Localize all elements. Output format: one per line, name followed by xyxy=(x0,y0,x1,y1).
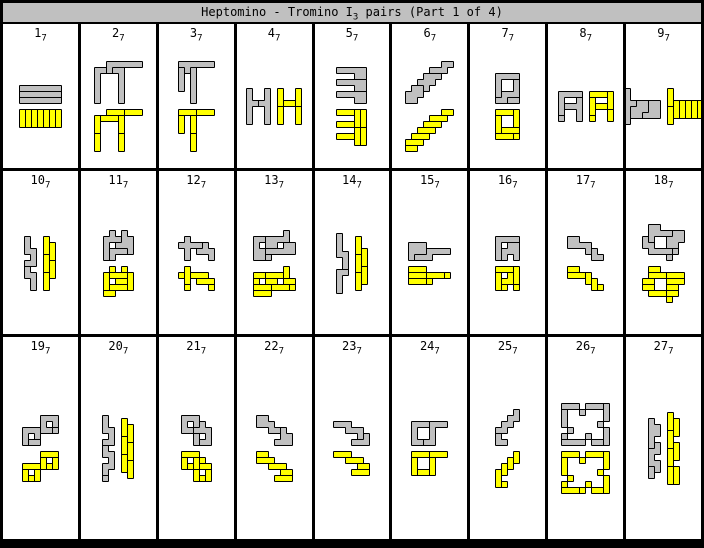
puzzle-cell-20: 207 xyxy=(81,337,156,539)
tromino-figure xyxy=(121,418,134,479)
tromino-figure xyxy=(495,109,520,140)
tromino-figure xyxy=(94,109,143,152)
heptomino-figure xyxy=(405,61,454,104)
figure-area xyxy=(181,358,212,539)
heptomino-figure xyxy=(94,61,143,104)
cell-label: 127 xyxy=(186,171,206,192)
cell-label: 187 xyxy=(654,171,674,192)
cell-label: 147 xyxy=(342,171,362,192)
heptomino-figure xyxy=(558,91,583,122)
puzzle-cell-18: 187 xyxy=(626,171,701,334)
heptomino-figure xyxy=(103,230,134,261)
puzzle-cell-14: 147 xyxy=(315,171,390,334)
tromino-figure xyxy=(253,266,296,297)
heptomino-figure xyxy=(626,88,660,125)
tromino-figure xyxy=(22,451,59,482)
figure-area xyxy=(648,358,680,539)
puzzle-cell-10: 107 xyxy=(3,171,78,334)
tromino-figure xyxy=(103,266,134,297)
cell-label: 277 xyxy=(654,337,674,358)
cell-label: 47 xyxy=(268,24,281,45)
cell-label: 167 xyxy=(498,171,518,192)
figure-area xyxy=(561,358,610,539)
cell-label: 247 xyxy=(420,337,440,358)
cell-label: 27 xyxy=(112,24,125,45)
tromino-figure xyxy=(181,451,212,482)
heptomino-figure xyxy=(22,415,59,446)
figure-area xyxy=(102,358,134,539)
figure-area xyxy=(408,192,451,334)
tromino-figure xyxy=(589,91,614,122)
heptomino-figure xyxy=(24,236,37,291)
figure-area xyxy=(405,45,454,168)
puzzle-cell-21: 217 xyxy=(159,337,234,539)
tromino-figure xyxy=(495,266,520,291)
heptomino-figure xyxy=(495,409,520,446)
puzzle-cell-7: 77 xyxy=(470,24,545,168)
heptomino-figure xyxy=(336,67,367,104)
figure-area xyxy=(246,45,302,168)
tromino-figure xyxy=(355,236,368,291)
heptomino-figure xyxy=(178,236,215,261)
figure-area xyxy=(558,45,614,168)
tromino-figure xyxy=(178,109,215,152)
cell-label: 77 xyxy=(501,24,514,45)
title-bar: Heptomino - Tromino I3 pairs (Part 1 of … xyxy=(3,3,701,24)
cell-label: 57 xyxy=(346,24,359,45)
cell-label: 257 xyxy=(498,337,518,358)
puzzle-cell-4: 47 xyxy=(237,24,312,168)
figure-area xyxy=(333,358,370,539)
tromino-figure xyxy=(495,451,520,488)
cell-label: 237 xyxy=(342,337,362,358)
figure-area xyxy=(178,192,215,334)
puzzle-sheet: Heptomino - Tromino I3 pairs (Part 1 of … xyxy=(0,0,704,548)
puzzle-cell-17: 177 xyxy=(548,171,623,334)
heptomino-figure xyxy=(495,236,520,261)
tromino-figure xyxy=(256,451,293,482)
heptomino-figure xyxy=(561,403,610,446)
cell-label: 17 xyxy=(34,24,47,45)
figure-area xyxy=(24,192,56,334)
tromino-figure xyxy=(642,266,685,303)
figure-area xyxy=(626,45,701,168)
cell-label: 197 xyxy=(31,337,51,358)
figure-area xyxy=(495,192,520,334)
puzzle-cell-24: 247 xyxy=(392,337,467,539)
cell-label: 67 xyxy=(424,24,437,45)
puzzle-grid: 1727374757677787971071171271371471571671… xyxy=(3,24,701,539)
puzzle-cell-9: 97 xyxy=(626,24,701,168)
figure-area xyxy=(94,45,143,168)
heptomino-figure xyxy=(256,415,293,446)
figure-area xyxy=(178,45,215,168)
tromino-figure xyxy=(667,412,680,485)
heptomino-figure xyxy=(567,236,604,261)
heptomino-figure xyxy=(333,421,370,446)
cell-label: 37 xyxy=(190,24,203,45)
heptomino-figure xyxy=(19,85,62,104)
puzzle-cell-5: 57 xyxy=(315,24,390,168)
cell-label: 267 xyxy=(576,337,596,358)
cell-label: 97 xyxy=(657,24,670,45)
figure-area xyxy=(336,192,368,334)
figure-area xyxy=(19,45,62,168)
figure-area xyxy=(411,358,448,539)
puzzle-cell-1: 17 xyxy=(3,24,78,168)
puzzle-cell-13: 137 xyxy=(237,171,312,334)
heptomino-figure xyxy=(642,224,685,261)
puzzle-cell-15: 157 xyxy=(392,171,467,334)
tromino-figure xyxy=(408,266,451,285)
puzzle-cell-11: 117 xyxy=(81,171,156,334)
figure-area xyxy=(567,192,604,334)
heptomino-figure xyxy=(102,415,115,482)
figure-area xyxy=(495,358,520,539)
tromino-figure xyxy=(19,109,62,128)
heptomino-figure xyxy=(246,88,271,125)
tromino-figure xyxy=(43,236,56,291)
heptomino-figure xyxy=(181,415,212,446)
tromino-figure xyxy=(405,109,454,152)
cell-label: 87 xyxy=(579,24,592,45)
figure-area xyxy=(256,358,293,539)
figure-area xyxy=(336,45,367,168)
puzzle-cell-22: 227 xyxy=(237,337,312,539)
cell-label: 137 xyxy=(264,171,284,192)
figure-area xyxy=(22,358,59,539)
figure-area xyxy=(253,192,296,334)
tromino-figure xyxy=(667,88,701,125)
page-title: Heptomino - Tromino I3 pairs (Part 1 of … xyxy=(201,5,503,19)
cell-label: 117 xyxy=(108,171,128,192)
figure-area xyxy=(103,192,134,334)
heptomino-figure xyxy=(648,418,661,479)
cell-label: 207 xyxy=(108,337,128,358)
heptomino-figure xyxy=(178,61,215,104)
puzzle-cell-3: 37 xyxy=(159,24,234,168)
cell-label: 227 xyxy=(264,337,284,358)
cell-label: 107 xyxy=(31,171,51,192)
puzzle-cell-2: 27 xyxy=(81,24,156,168)
tromino-figure xyxy=(567,266,604,291)
puzzle-cell-6: 67 xyxy=(392,24,467,168)
heptomino-figure xyxy=(253,230,296,261)
figure-area xyxy=(642,192,685,334)
puzzle-cell-25: 257 xyxy=(470,337,545,539)
heptomino-figure xyxy=(336,233,349,294)
tromino-figure xyxy=(336,109,367,146)
puzzle-cell-12: 127 xyxy=(159,171,234,334)
tromino-figure xyxy=(561,451,610,494)
heptomino-figure xyxy=(411,421,448,446)
puzzle-cell-23: 237 xyxy=(315,337,390,539)
tromino-figure xyxy=(411,451,448,476)
cell-label: 177 xyxy=(576,171,596,192)
heptomino-figure xyxy=(495,73,520,104)
heptomino-figure xyxy=(408,242,451,261)
tromino-figure xyxy=(333,451,370,476)
cell-label: 157 xyxy=(420,171,440,192)
puzzle-cell-26: 267 xyxy=(548,337,623,539)
puzzle-cell-27: 277 xyxy=(626,337,701,539)
cell-label: 217 xyxy=(186,337,206,358)
tromino-figure xyxy=(178,266,215,291)
puzzle-cell-19: 197 xyxy=(3,337,78,539)
tromino-figure xyxy=(277,88,302,125)
figure-area xyxy=(495,45,520,168)
puzzle-cell-8: 87 xyxy=(548,24,623,168)
puzzle-cell-16: 167 xyxy=(470,171,545,334)
